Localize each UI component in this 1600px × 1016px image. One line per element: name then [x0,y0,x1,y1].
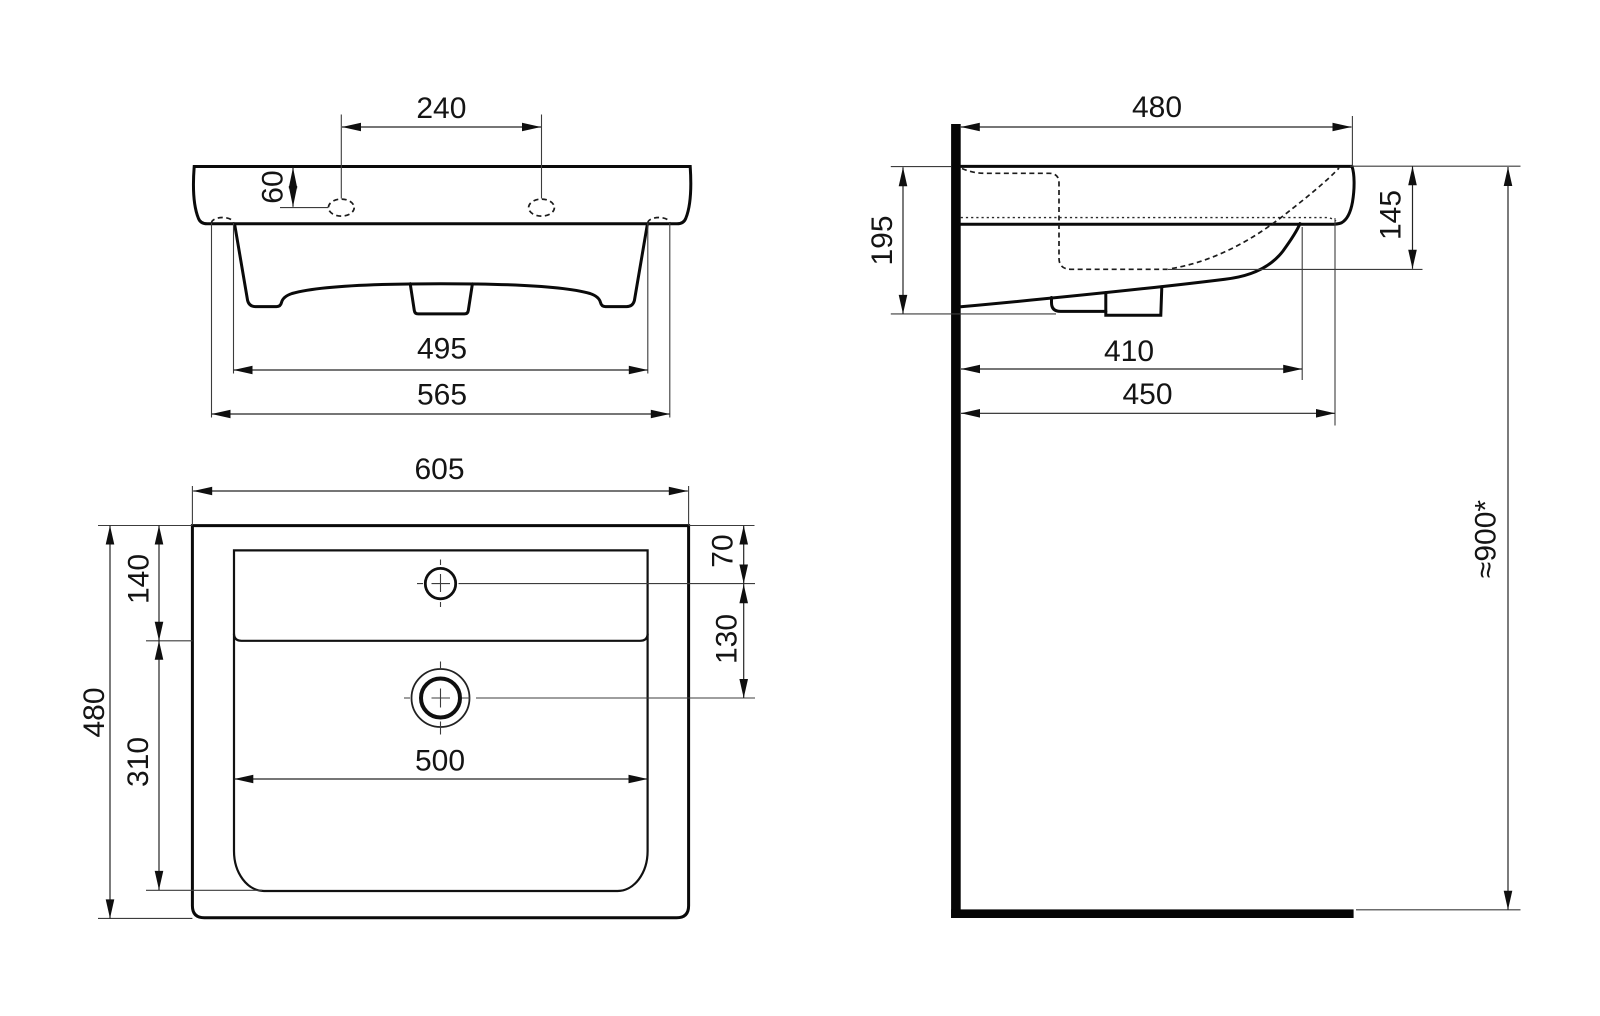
svg-text:565: 565 [417,379,467,412]
svg-text:70: 70 [707,534,740,567]
svg-text:310: 310 [122,737,155,787]
svg-text:60: 60 [257,170,290,203]
svg-text:605: 605 [414,453,464,486]
svg-text:≈900*: ≈900* [1470,500,1503,579]
svg-text:495: 495 [417,333,467,366]
svg-text:480: 480 [1132,91,1182,124]
svg-text:130: 130 [711,614,744,664]
svg-text:410: 410 [1104,335,1154,368]
svg-text:480: 480 [78,687,111,737]
svg-text:140: 140 [123,554,156,604]
svg-text:240: 240 [416,92,466,125]
svg-text:195: 195 [866,215,899,265]
svg-text:145: 145 [1375,190,1408,240]
svg-text:500: 500 [415,745,465,778]
svg-text:450: 450 [1122,378,1172,411]
